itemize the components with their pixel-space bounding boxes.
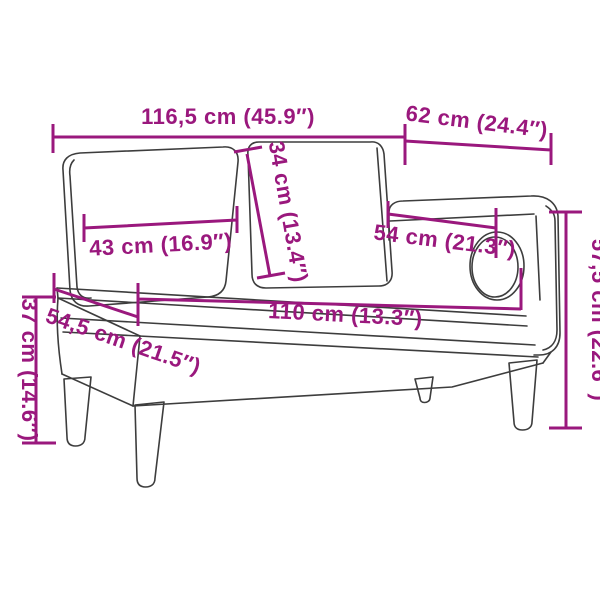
dim-seat-height-label: 37 cm (14.6″) [17,298,42,441]
dim-seat-depth-label: 54,5 cm (21.5″) [43,303,205,379]
armrest-front-edge [536,216,540,300]
dim-back-cushion-width-label: 43 cm (16.9″) [89,228,233,260]
dim-overall-height-line [549,212,582,428]
dim-seat-length-label: 110 cm (13.3″) [268,298,424,331]
dim-arm-section-length: 62 cm (24.4″) [404,100,551,165]
dim-overall-length-label: 116,5 cm (45.9″) [141,104,315,129]
dim-back-cushion-height: 34 cm (13.4″) [234,139,313,284]
dim-overall-length: 116,5 cm (45.9″) [53,104,405,165]
dimension-diagram: 116,5 cm (45.9″) 62 cm (24.4″) 34 cm (13… [0,0,600,600]
dim-arm-section-length-label: 62 cm (24.4″) [404,100,549,142]
armrest-inner-edge [543,206,557,350]
dim-back-cushion-width: 43 cm (16.9″) [84,206,237,261]
dim-back-cushion-height-label: 34 cm (13.4″) [264,139,313,284]
dim-armrest-length: 54 cm (21.3″) [372,201,517,262]
dim-overall-length-line [53,124,405,165]
front-left-leg [64,377,91,446]
chaise-lounge-diagram-svg: 116,5 cm (45.9″) 62 cm (24.4″) 34 cm (13… [0,0,600,600]
dim-overall-height-label: 57,5 cm (22.6″) [587,239,600,401]
front-middle-leg [135,402,164,487]
